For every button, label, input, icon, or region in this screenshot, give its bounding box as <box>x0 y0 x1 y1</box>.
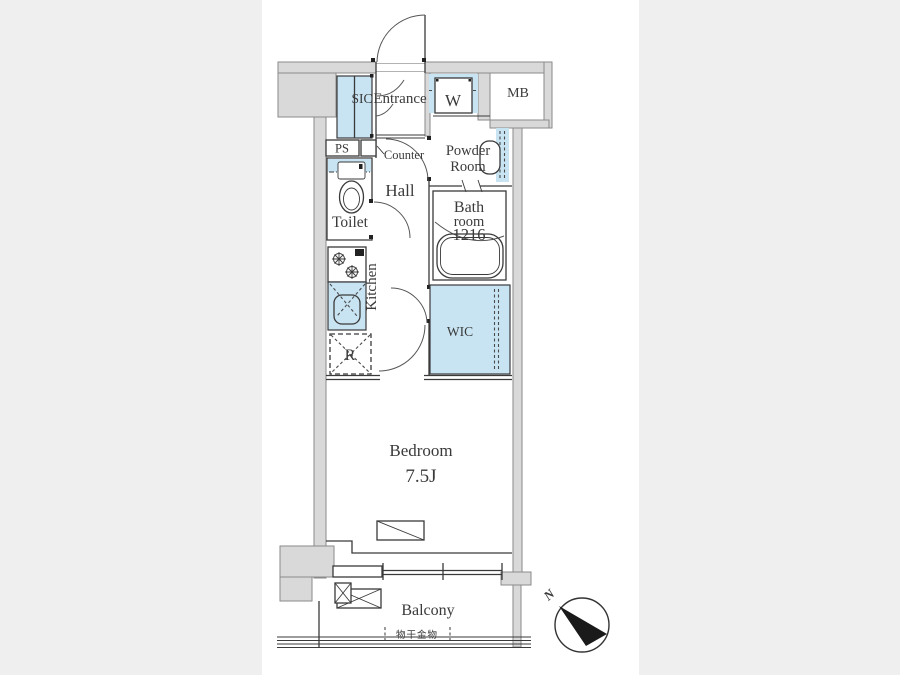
door-stop <box>422 58 426 62</box>
corner-mark <box>436 79 439 82</box>
door-stop <box>369 199 373 203</box>
wall-mb-bottom <box>490 120 549 128</box>
label-washing-machine: W <box>445 91 462 110</box>
door-stop <box>427 136 431 140</box>
door-stop <box>370 74 374 78</box>
label-bedroom: Bedroom <box>389 441 452 460</box>
bedroom-door-arc <box>379 325 425 371</box>
label-mb: MB <box>507 86 529 101</box>
wall-botright-block <box>501 572 531 585</box>
wic-door-arc <box>391 288 427 323</box>
label-balcony: Balcony <box>401 602 454 619</box>
label-bath-line3: 1216 <box>453 225 486 244</box>
room-hall: Counter Hall <box>377 146 425 200</box>
label-bedroom-size: 7.5J <box>405 466 436 487</box>
label-entrance: Entrance <box>373 91 427 107</box>
label-toilet: Toilet <box>332 214 369 231</box>
label-compass-north: N <box>540 586 558 605</box>
door-stop <box>369 235 373 239</box>
floor-plan-page: Entrance SIC PS W <box>0 0 900 675</box>
label-laundry-hardware: 物干金物 <box>396 629 438 641</box>
wall-top-band-left <box>278 62 376 73</box>
room-wic: WIC <box>430 285 510 374</box>
bath-door-jamb <box>462 180 466 192</box>
balcony: Balcony 物干金物 <box>277 583 531 648</box>
wall-mb-right <box>544 62 552 128</box>
wall-topleft-block <box>278 73 336 117</box>
washer-niche: W <box>429 74 478 113</box>
toilet-bowl-inner <box>344 188 360 210</box>
label-ps: PS <box>335 142 349 156</box>
toilet-flush-handle <box>359 164 363 169</box>
room-bedroom: Bedroom 7.5J <box>326 441 512 580</box>
label-kitchen: Kitchen <box>364 263 380 311</box>
refrigerator-space: R <box>330 334 371 374</box>
door-stop <box>371 58 375 62</box>
pipe-space: PS <box>326 140 376 156</box>
window-side-wall <box>333 566 382 577</box>
wall-botleft-stem <box>280 577 312 601</box>
toilet-bowl <box>340 181 364 213</box>
door-stop <box>370 134 374 138</box>
wall-botleft-block <box>280 546 334 577</box>
corridor-bedroom-wall <box>326 376 512 380</box>
entrance-door-arc <box>377 15 425 62</box>
compass: N <box>540 586 609 652</box>
label-counter: Counter <box>384 148 425 162</box>
label-sic: SIC <box>351 91 372 106</box>
label-refrigerator: R <box>345 347 356 364</box>
floor-plan-canvas: Entrance SIC PS W <box>0 0 900 675</box>
meter-box: MB <box>507 86 529 101</box>
bedroom-bottom-wall <box>326 541 512 553</box>
wall-top-band-right <box>425 62 552 73</box>
grill <box>355 249 364 256</box>
corner-mark <box>469 79 472 82</box>
wall-botright-strip <box>513 585 521 647</box>
toilet-door-arc <box>374 202 410 238</box>
label-wic: WIC <box>447 324 473 339</box>
wall-left <box>314 117 326 578</box>
wall-right <box>513 128 522 572</box>
label-powder-line2: Room <box>450 159 486 175</box>
compass-needle <box>559 606 607 646</box>
room-bathroom: Bath room 1216 <box>433 191 506 280</box>
label-powder-line1: Powder <box>446 143 490 159</box>
duct-box <box>361 140 376 156</box>
label-hall: Hall <box>385 181 415 200</box>
wall-mb-left <box>478 73 490 120</box>
room-kitchen: R Kitchen <box>328 247 427 374</box>
